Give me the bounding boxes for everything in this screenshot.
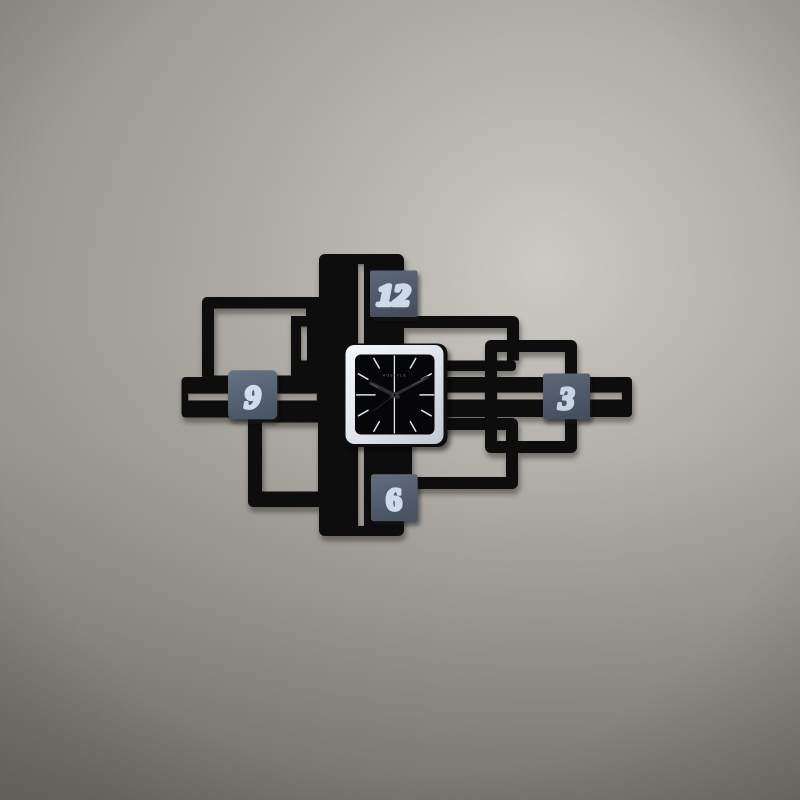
svg-text:HOSTYLE: HOSTYLE xyxy=(383,374,407,378)
svg-text:12: 12 xyxy=(377,279,410,312)
svg-text:3: 3 xyxy=(558,380,575,416)
svg-text:9: 9 xyxy=(244,380,261,416)
svg-text:6: 6 xyxy=(386,481,402,517)
